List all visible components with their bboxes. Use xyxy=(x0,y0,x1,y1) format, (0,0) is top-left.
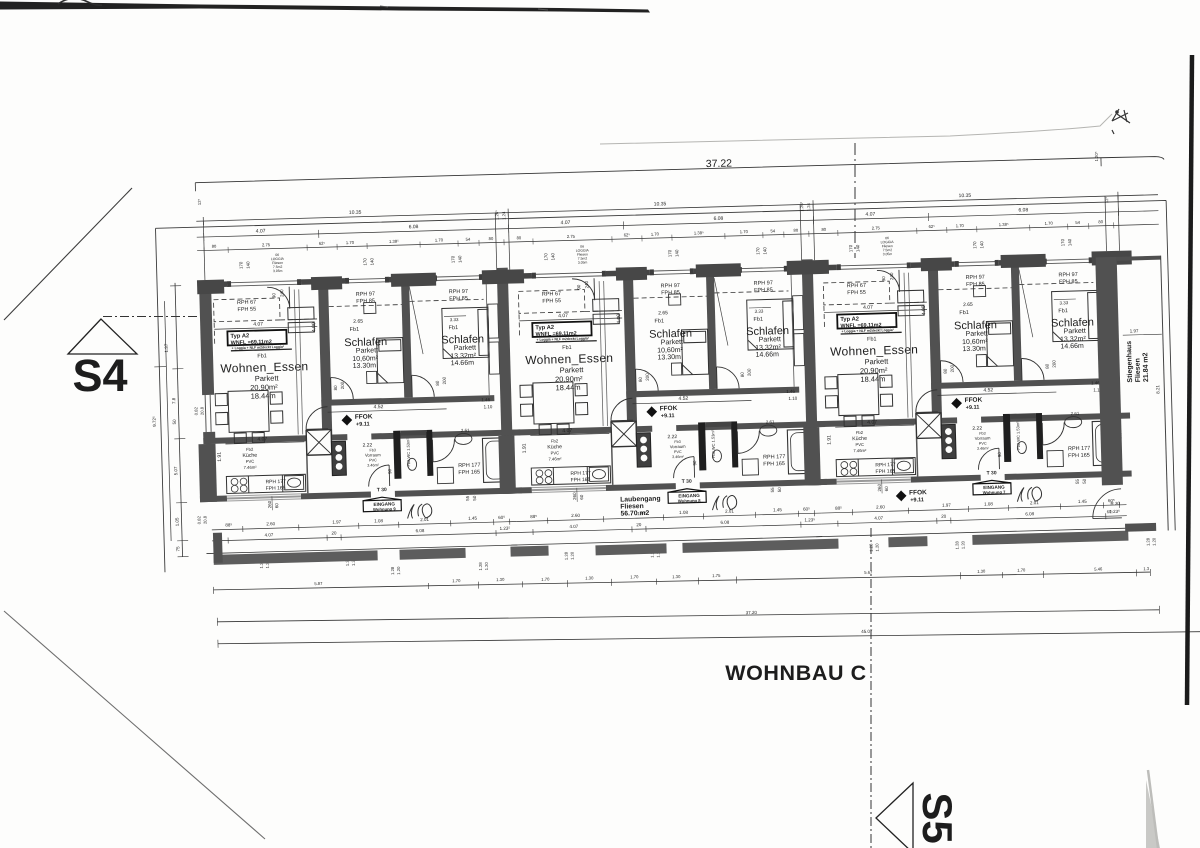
svg-text:1.28: 1.28 xyxy=(1145,537,1150,546)
svg-text:12⁵: 12⁵ xyxy=(1104,196,1109,203)
svg-text:62⁵: 62⁵ xyxy=(319,241,326,246)
svg-text:5.67: 5.67 xyxy=(864,570,873,575)
svg-text:140: 140 xyxy=(979,241,984,249)
svg-text:140: 140 xyxy=(550,252,555,260)
svg-text:75: 75 xyxy=(175,546,180,552)
svg-text:1.70: 1.70 xyxy=(435,237,444,242)
svg-text:21.84 m2: 21.84 m2 xyxy=(1142,352,1150,382)
svg-text:20.8: 20.8 xyxy=(202,515,207,524)
svg-text:5.07: 5.07 xyxy=(173,466,178,475)
svg-text:1.20: 1.20 xyxy=(484,561,489,570)
svg-text:1.30: 1.30 xyxy=(672,574,681,579)
svg-text:10.35: 10.35 xyxy=(349,210,362,216)
svg-text:1.97: 1.97 xyxy=(1130,328,1139,333)
svg-text:4.07: 4.07 xyxy=(561,220,571,226)
svg-text:1.38⁵: 1.38⁵ xyxy=(999,222,1009,227)
svg-text:60⁵: 60⁵ xyxy=(1107,509,1114,514)
svg-text:140: 140 xyxy=(457,255,462,263)
svg-text:80: 80 xyxy=(1098,219,1103,224)
svg-text:54: 54 xyxy=(466,237,471,242)
svg-text:170: 170 xyxy=(450,255,455,263)
svg-text:3.05m: 3.05m xyxy=(883,252,893,256)
svg-text:1.38⁵: 1.38⁵ xyxy=(694,230,704,235)
svg-text:8.21: 8.21 xyxy=(1155,384,1160,393)
svg-text:Stiegenhaus: Stiegenhaus xyxy=(1126,341,1134,383)
svg-text:3.05m: 3.05m xyxy=(578,260,588,264)
svg-text:6.08: 6.08 xyxy=(714,216,724,222)
svg-text:20.8: 20.8 xyxy=(199,406,204,415)
svg-text:1.70: 1.70 xyxy=(956,223,965,228)
svg-text:6.08: 6.08 xyxy=(1018,207,1028,213)
svg-text:Wohnung 9: Wohnung 9 xyxy=(373,506,397,512)
svg-text:FFOK: FFOK xyxy=(909,489,927,496)
svg-text:WOHNBAU C: WOHNBAU C xyxy=(725,661,867,685)
svg-text:37.20: 37.20 xyxy=(746,610,758,615)
svg-text:140: 140 xyxy=(369,257,374,265)
svg-text:0.82: 0.82 xyxy=(193,406,198,415)
svg-text:80: 80 xyxy=(212,244,217,249)
svg-text:1.38⁵: 1.38⁵ xyxy=(389,239,399,244)
svg-text:37.22: 37.22 xyxy=(706,157,733,170)
svg-text:1.24: 1.24 xyxy=(806,202,811,211)
svg-text:9.72⁵: 9.72⁵ xyxy=(152,416,157,427)
svg-text:Wohnung 7: Wohnung 7 xyxy=(983,489,1007,495)
svg-text:1.70: 1.70 xyxy=(651,231,660,236)
svg-text:62⁵: 62⁵ xyxy=(928,224,935,229)
svg-text:1.30: 1.30 xyxy=(977,569,986,574)
svg-text:170: 170 xyxy=(362,258,367,266)
svg-text:6.08: 6.08 xyxy=(409,224,419,230)
svg-text:1.70: 1.70 xyxy=(541,577,550,582)
svg-text:2.75: 2.75 xyxy=(262,242,271,247)
svg-text:R 30: R 30 xyxy=(1110,501,1120,506)
svg-text:80: 80 xyxy=(793,228,798,233)
svg-text:50: 50 xyxy=(172,419,177,425)
svg-text:1.26⁵: 1.26⁵ xyxy=(799,201,804,211)
svg-text:1.3: 1.3 xyxy=(1143,566,1150,571)
svg-text:170: 170 xyxy=(238,261,243,269)
svg-text:7.8: 7.8 xyxy=(171,397,176,404)
svg-text:S5: S5 xyxy=(914,792,961,843)
svg-text:80: 80 xyxy=(489,236,494,241)
svg-text:2.75: 2.75 xyxy=(567,234,576,239)
svg-text:1.70: 1.70 xyxy=(346,240,355,245)
svg-text:170: 170 xyxy=(972,241,977,249)
svg-text:170: 170 xyxy=(543,253,548,261)
svg-text:1.05: 1.05 xyxy=(174,517,179,526)
svg-text:1.28: 1.28 xyxy=(390,566,395,575)
svg-text:0.82: 0.82 xyxy=(196,515,201,524)
svg-text:170: 170 xyxy=(848,244,853,252)
svg-text:12⁵: 12⁵ xyxy=(197,198,202,205)
svg-text:140: 140 xyxy=(1067,238,1072,246)
svg-text:1.37: 1.37 xyxy=(164,343,169,352)
svg-text:1.24: 1.24 xyxy=(501,211,506,220)
svg-text:1.30: 1.30 xyxy=(496,577,505,582)
svg-text:5.46: 5.46 xyxy=(1094,566,1103,571)
svg-text:1.28: 1.28 xyxy=(478,562,483,571)
svg-text:80: 80 xyxy=(821,227,826,232)
svg-text:1.70: 1.70 xyxy=(740,229,749,234)
svg-text:1.70: 1.70 xyxy=(452,578,461,583)
svg-text:140: 140 xyxy=(855,244,860,252)
svg-text:1.20⁵: 1.20⁵ xyxy=(1094,151,1099,161)
svg-text:1.30: 1.30 xyxy=(585,575,594,580)
svg-text:1.20: 1.20 xyxy=(1151,537,1156,546)
svg-text:4.07: 4.07 xyxy=(865,211,875,217)
svg-text:140: 140 xyxy=(245,261,250,269)
svg-text:10.35: 10.35 xyxy=(959,193,972,199)
svg-text:10.35: 10.35 xyxy=(654,201,667,207)
svg-text:62⁵: 62⁵ xyxy=(624,232,631,237)
svg-text:1.70: 1.70 xyxy=(1045,221,1054,226)
svg-text:170: 170 xyxy=(1060,238,1065,246)
svg-text:54: 54 xyxy=(1075,220,1080,225)
svg-text:3.05m: 3.05m xyxy=(273,269,283,273)
svg-text:Wohnung 8: Wohnung 8 xyxy=(678,498,702,504)
svg-text:4.07: 4.07 xyxy=(256,228,266,234)
svg-text:56.70 m2: 56.70 m2 xyxy=(620,510,649,518)
svg-text:1.70: 1.70 xyxy=(1017,567,1026,572)
svg-text:140: 140 xyxy=(674,249,679,257)
svg-text:5.87: 5.87 xyxy=(314,581,323,586)
svg-text:1.26⁵: 1.26⁵ xyxy=(494,210,499,220)
svg-text:1.75: 1.75 xyxy=(712,573,721,578)
svg-text:2.75: 2.75 xyxy=(872,225,881,230)
svg-text:170: 170 xyxy=(667,249,672,257)
svg-text:S4: S4 xyxy=(72,350,127,401)
svg-text:1.70: 1.70 xyxy=(630,574,639,579)
svg-text:54: 54 xyxy=(770,228,775,233)
svg-text:+9.11: +9.11 xyxy=(910,497,924,503)
svg-text:80: 80 xyxy=(516,235,521,240)
svg-text:Fliesen: Fliesen xyxy=(1134,358,1142,382)
svg-text:140: 140 xyxy=(762,247,767,255)
svg-text:1.20: 1.20 xyxy=(396,566,401,575)
svg-text:170: 170 xyxy=(755,247,760,255)
